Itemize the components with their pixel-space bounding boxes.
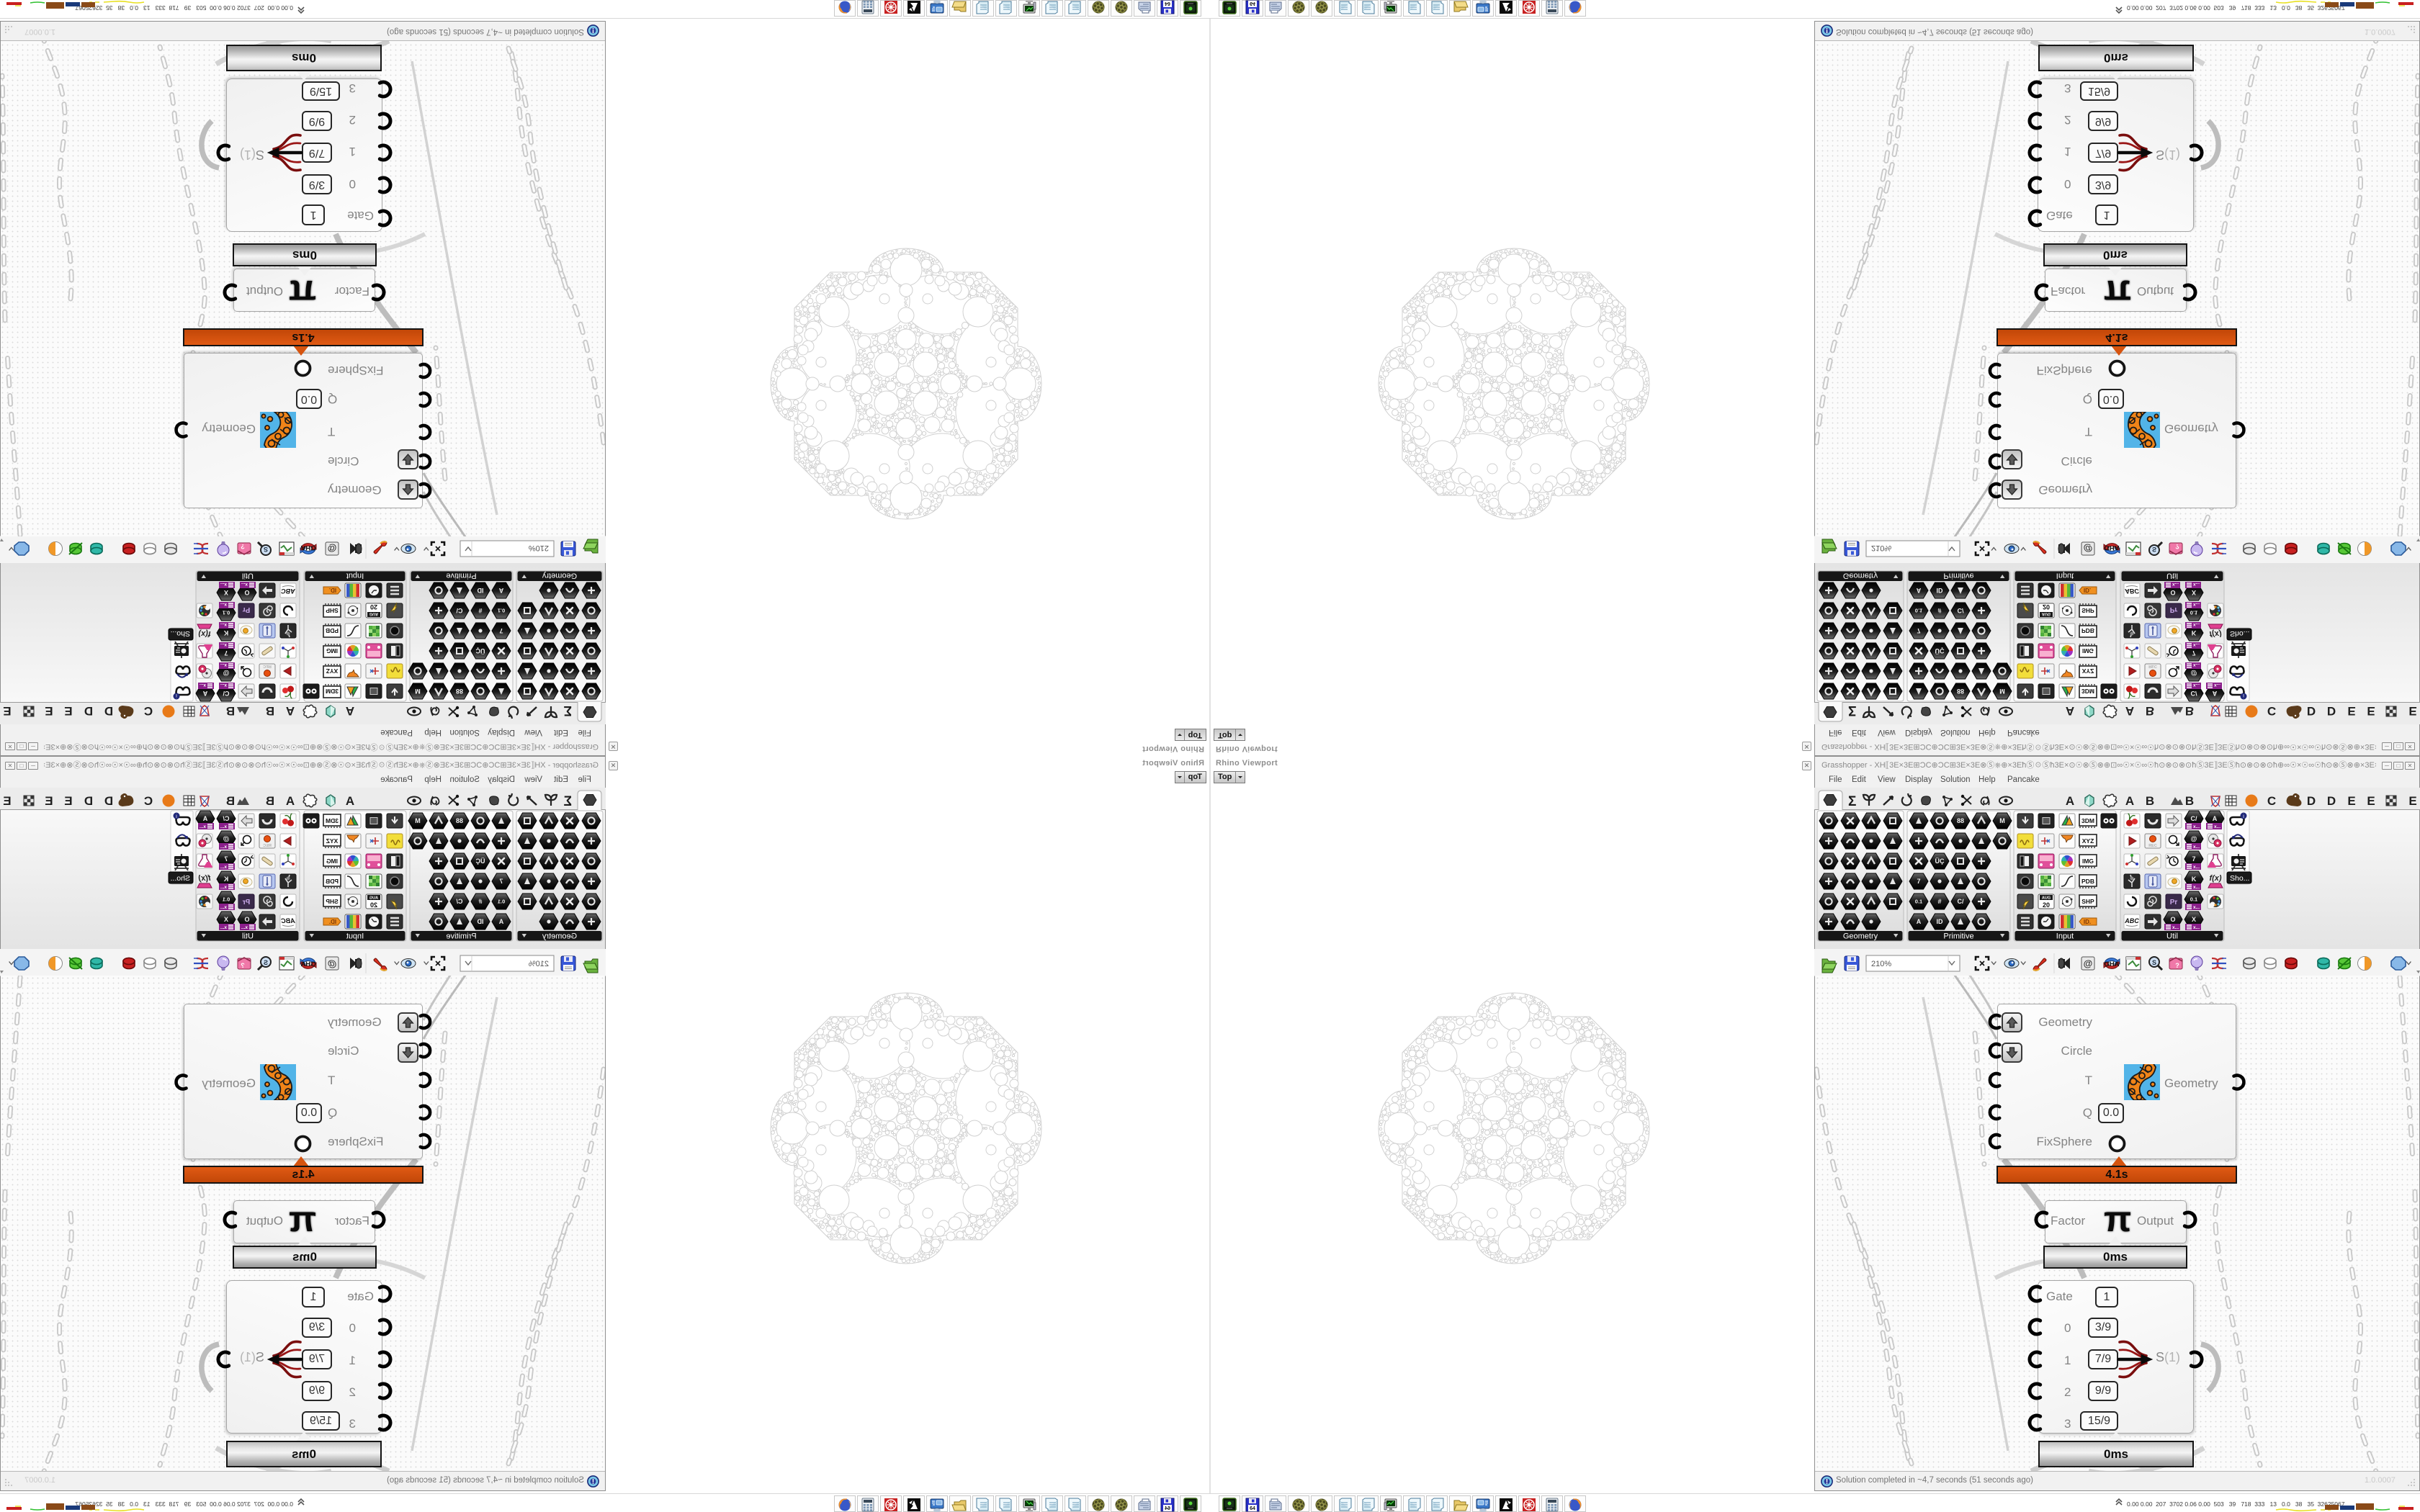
svg-text:7: 7 bbox=[224, 649, 228, 657]
svg-text:210%: 210% bbox=[1871, 960, 1891, 968]
svg-text:AUG: AUG bbox=[369, 896, 378, 901]
svg-text:C/: C/ bbox=[456, 607, 462, 614]
svg-text:AUG: AUG bbox=[369, 612, 378, 616]
svg-text:E: E bbox=[2408, 704, 2416, 718]
svg-text:B: B bbox=[266, 794, 274, 808]
svg-text:Input: Input bbox=[2056, 932, 2074, 941]
svg-text:C: C bbox=[144, 704, 153, 718]
svg-text:@: @ bbox=[2191, 670, 2197, 677]
svg-text:D: D bbox=[2307, 704, 2316, 718]
svg-text:20: 20 bbox=[2043, 603, 2050, 611]
svg-text:x...: x... bbox=[2193, 845, 2200, 850]
svg-text:x...: x... bbox=[220, 824, 227, 829]
svg-text:f(x): f(x) bbox=[2209, 629, 2221, 638]
svg-text:0.1: 0.1 bbox=[2190, 896, 2197, 903]
svg-text:ID.: ID. bbox=[2084, 919, 2091, 925]
svg-text:Primitive: Primitive bbox=[446, 932, 476, 941]
svg-text:@: @ bbox=[328, 544, 337, 554]
svg-text:Pr: Pr bbox=[243, 606, 251, 613]
svg-text:@: @ bbox=[223, 670, 229, 677]
svg-text:B: B bbox=[2185, 794, 2194, 808]
svg-text:IMG: IMG bbox=[2082, 647, 2094, 654]
svg-text:E: E bbox=[45, 704, 53, 718]
svg-text:7: 7 bbox=[1917, 627, 1920, 634]
svg-text:!: ! bbox=[592, 1478, 594, 1486]
svg-text:REC: REC bbox=[263, 664, 272, 668]
svg-text:x...: x... bbox=[220, 642, 227, 647]
svg-text:K: K bbox=[2192, 876, 2197, 883]
svg-text:ID: ID bbox=[1937, 587, 1944, 594]
svg-text:M: M bbox=[415, 688, 421, 695]
svg-text:x...: x... bbox=[2193, 602, 2200, 607]
svg-text:PDB: PDB bbox=[2081, 878, 2094, 885]
svg-text:#: # bbox=[478, 607, 482, 614]
svg-text:A: A bbox=[2213, 815, 2218, 822]
svg-text:0.1: 0.1 bbox=[498, 607, 505, 613]
svg-text:0.1: 0.1 bbox=[1915, 607, 1922, 613]
svg-text:A: A bbox=[2066, 794, 2074, 808]
svg-text:ÜÇ: ÜÇ bbox=[475, 858, 485, 865]
svg-text:REC: REC bbox=[263, 844, 272, 848]
svg-text:X: X bbox=[2192, 916, 2196, 923]
svg-text:ID.: ID. bbox=[2084, 587, 2091, 593]
svg-text:K: K bbox=[2192, 629, 2197, 636]
svg-text:B: B bbox=[2146, 794, 2154, 808]
svg-text:7: 7 bbox=[224, 855, 228, 863]
svg-text:E: E bbox=[2347, 704, 2355, 718]
svg-text:x...: x... bbox=[2172, 582, 2179, 587]
svg-text:AUG: AUG bbox=[2042, 896, 2051, 901]
svg-text:O: O bbox=[244, 916, 249, 923]
svg-text:x...: x... bbox=[220, 845, 227, 850]
svg-text:64: 64 bbox=[1250, 1506, 1255, 1511]
svg-text:IMG: IMG bbox=[2082, 858, 2094, 865]
svg-text:x...: x... bbox=[220, 925, 227, 930]
svg-text:@: @ bbox=[2191, 835, 2197, 842]
svg-text:?: ? bbox=[2175, 962, 2179, 969]
svg-text:GHA: GHA bbox=[300, 960, 315, 968]
svg-text:x...: x... bbox=[2193, 622, 2200, 627]
svg-text:#: # bbox=[1937, 898, 1941, 905]
svg-text:C/: C/ bbox=[456, 898, 462, 905]
svg-text:S: S bbox=[264, 546, 268, 553]
svg-text:x...: x... bbox=[220, 865, 227, 870]
svg-text:x...: x... bbox=[2172, 925, 2179, 930]
svg-text:Primitive: Primitive bbox=[1943, 932, 1973, 941]
svg-text:ID: ID bbox=[477, 918, 484, 925]
svg-text:#: # bbox=[1937, 607, 1941, 614]
svg-text:?: ? bbox=[2175, 543, 2179, 550]
svg-text:x...: x... bbox=[2193, 824, 2200, 829]
svg-text:Geometry: Geometry bbox=[542, 572, 577, 580]
svg-text:x...: x... bbox=[220, 683, 227, 688]
svg-text:#: # bbox=[478, 898, 482, 905]
svg-text:ID: ID bbox=[477, 587, 484, 594]
svg-text:B: B bbox=[226, 794, 235, 808]
svg-text:E: E bbox=[64, 704, 72, 718]
svg-text:ABC: ABC bbox=[2124, 588, 2139, 595]
svg-text:20: 20 bbox=[2043, 901, 2050, 909]
svg-text:ID.: ID. bbox=[329, 919, 336, 925]
svg-text:@: @ bbox=[223, 835, 229, 842]
svg-text:88: 88 bbox=[1957, 817, 1964, 824]
svg-text:88: 88 bbox=[1957, 688, 1964, 695]
svg-text:A: A bbox=[202, 815, 207, 822]
svg-text:XYZ: XYZ bbox=[2082, 667, 2094, 675]
svg-text:D: D bbox=[104, 704, 113, 718]
svg-text:Sho...: Sho... bbox=[2230, 874, 2249, 883]
svg-text:E: E bbox=[2347, 794, 2355, 808]
svg-text:ABC: ABC bbox=[2124, 917, 2139, 924]
svg-text:Input: Input bbox=[346, 572, 364, 580]
svg-text:Primitive: Primitive bbox=[1943, 572, 1973, 580]
svg-text:Pr: Pr bbox=[2170, 606, 2178, 613]
svg-text:PDB: PDB bbox=[326, 627, 339, 634]
svg-text:0.1: 0.1 bbox=[223, 896, 230, 903]
svg-text:x...: x... bbox=[220, 622, 227, 627]
svg-text:?: ? bbox=[241, 962, 245, 969]
svg-text:7: 7 bbox=[2192, 855, 2195, 863]
svg-text:20: 20 bbox=[370, 901, 377, 909]
svg-text:!: ! bbox=[1826, 26, 1828, 34]
svg-text:Geometry: Geometry bbox=[1843, 932, 1878, 941]
svg-text:Σ: Σ bbox=[564, 794, 572, 809]
svg-text:C/: C/ bbox=[223, 815, 229, 822]
svg-text:O: O bbox=[2170, 916, 2175, 923]
svg-text:D: D bbox=[2307, 794, 2316, 808]
svg-text:0.1: 0.1 bbox=[2190, 609, 2197, 616]
svg-text:3DM: 3DM bbox=[326, 688, 339, 695]
svg-text:ÜÇ: ÜÇ bbox=[475, 647, 485, 654]
svg-text:S: S bbox=[2152, 959, 2156, 966]
svg-text:E: E bbox=[2408, 794, 2416, 808]
svg-text:A: A bbox=[2125, 794, 2134, 808]
svg-text:!: ! bbox=[592, 26, 594, 34]
svg-text:C: C bbox=[2267, 794, 2276, 808]
svg-text:x...: x... bbox=[220, 905, 227, 910]
svg-text:A: A bbox=[286, 794, 295, 808]
svg-text:Pr: Pr bbox=[243, 899, 251, 906]
svg-text:A: A bbox=[1917, 587, 1922, 594]
svg-text:D: D bbox=[2327, 794, 2336, 808]
svg-text:x...: x... bbox=[2193, 662, 2200, 667]
svg-text:E: E bbox=[64, 794, 72, 808]
svg-text:B: B bbox=[2185, 704, 2194, 718]
svg-text:x...: x... bbox=[2193, 683, 2200, 688]
svg-text:Primitive: Primitive bbox=[446, 572, 476, 580]
svg-text:Σ: Σ bbox=[564, 703, 572, 718]
svg-text:S: S bbox=[2152, 546, 2156, 553]
svg-text:S: S bbox=[264, 959, 268, 966]
svg-text:IMG: IMG bbox=[326, 647, 338, 654]
svg-text:A: A bbox=[498, 587, 503, 594]
svg-text:x...: x... bbox=[220, 602, 227, 607]
svg-text:C/: C/ bbox=[2191, 690, 2197, 697]
svg-text:7: 7 bbox=[1917, 878, 1920, 885]
svg-text:Σ: Σ bbox=[1848, 703, 1856, 718]
svg-text:A: A bbox=[346, 794, 354, 808]
svg-text:x...: x... bbox=[2193, 905, 2200, 910]
svg-text:ÜÇ: ÜÇ bbox=[1935, 858, 1945, 865]
svg-text:A: A bbox=[2066, 704, 2074, 718]
svg-text:A: A bbox=[498, 918, 503, 925]
svg-text:X: X bbox=[224, 916, 228, 923]
svg-text:x...: x... bbox=[241, 925, 248, 930]
svg-text:Σ: Σ bbox=[1848, 794, 1856, 809]
svg-text:K: K bbox=[223, 629, 228, 636]
svg-text:64: 64 bbox=[1165, 1506, 1170, 1511]
svg-text:64: 64 bbox=[1250, 1, 1255, 6]
svg-text:AUG: AUG bbox=[2042, 612, 2051, 616]
svg-text:PDB: PDB bbox=[326, 878, 339, 885]
svg-text:B: B bbox=[226, 704, 235, 718]
svg-text:SHP: SHP bbox=[2081, 898, 2094, 905]
svg-text:C/: C/ bbox=[1958, 607, 1964, 614]
svg-text:C: C bbox=[144, 794, 153, 808]
svg-text:Sho...: Sho... bbox=[171, 874, 190, 883]
svg-text:x...: x... bbox=[241, 582, 248, 587]
svg-text:ID: ID bbox=[1937, 918, 1944, 925]
svg-text:88: 88 bbox=[456, 688, 463, 695]
svg-text:X: X bbox=[2192, 589, 2196, 596]
svg-text:3DM: 3DM bbox=[2081, 817, 2094, 824]
svg-text:A: A bbox=[202, 690, 207, 697]
svg-text:20: 20 bbox=[370, 603, 377, 611]
svg-text:88: 88 bbox=[456, 817, 463, 824]
svg-text:Util: Util bbox=[2166, 932, 2178, 941]
svg-text:XYZ: XYZ bbox=[326, 667, 339, 675]
svg-text:E: E bbox=[3, 704, 11, 718]
svg-text:3DM: 3DM bbox=[326, 817, 339, 824]
svg-text:D: D bbox=[84, 794, 93, 808]
svg-text:x...: x... bbox=[2214, 824, 2220, 829]
svg-text:f(x): f(x) bbox=[2209, 874, 2221, 883]
svg-text:!: ! bbox=[1826, 1478, 1828, 1486]
svg-text:REC: REC bbox=[2148, 844, 2157, 848]
svg-text:X: X bbox=[224, 589, 228, 596]
svg-text:@: @ bbox=[2084, 544, 2093, 554]
svg-text:0.1: 0.1 bbox=[223, 609, 230, 616]
svg-text:K: K bbox=[223, 876, 228, 883]
svg-text:210%: 210% bbox=[529, 960, 549, 968]
svg-text:O: O bbox=[2170, 589, 2175, 596]
svg-text:E: E bbox=[2367, 794, 2375, 808]
svg-text:E: E bbox=[2367, 704, 2375, 718]
svg-text:M: M bbox=[415, 817, 421, 824]
svg-text:B: B bbox=[266, 704, 274, 718]
svg-text:A: A bbox=[2213, 690, 2218, 697]
svg-text:ABC: ABC bbox=[281, 917, 296, 924]
svg-text:x...: x... bbox=[220, 582, 227, 587]
svg-text:D: D bbox=[2327, 704, 2336, 718]
svg-text:64: 64 bbox=[1165, 1, 1170, 6]
svg-text:ABC: ABC bbox=[281, 588, 296, 595]
svg-text:O: O bbox=[244, 589, 249, 596]
svg-text:Geometry: Geometry bbox=[1843, 572, 1878, 580]
svg-text:Input: Input bbox=[346, 932, 364, 941]
svg-text:Geometry: Geometry bbox=[542, 932, 577, 941]
svg-text:Input: Input bbox=[2056, 572, 2074, 580]
svg-text:GHA: GHA bbox=[300, 544, 315, 552]
svg-text:x...: x... bbox=[2193, 925, 2200, 930]
svg-text:A: A bbox=[2125, 704, 2134, 718]
svg-text:B: B bbox=[2146, 704, 2154, 718]
svg-text:C/: C/ bbox=[223, 690, 229, 697]
svg-text:Util: Util bbox=[242, 572, 254, 580]
svg-text:GHA: GHA bbox=[2104, 960, 2119, 968]
svg-text:ÜÇ: ÜÇ bbox=[1935, 647, 1945, 654]
svg-text:REC: REC bbox=[2148, 664, 2157, 668]
svg-text:x...: x... bbox=[2193, 642, 2200, 647]
svg-text:x...: x... bbox=[2214, 683, 2220, 688]
svg-text:C/: C/ bbox=[1958, 898, 1964, 905]
svg-text:7: 7 bbox=[2192, 649, 2195, 657]
svg-text:f(x): f(x) bbox=[198, 874, 210, 883]
svg-text:f(x): f(x) bbox=[198, 629, 210, 638]
svg-text:@: @ bbox=[328, 958, 337, 969]
svg-text:SHP: SHP bbox=[326, 898, 339, 905]
svg-text:@: @ bbox=[2084, 958, 2093, 969]
svg-text:?: ? bbox=[241, 543, 245, 550]
svg-text:x...: x... bbox=[200, 683, 206, 688]
svg-text:C/: C/ bbox=[2191, 815, 2197, 822]
svg-text:Pr: Pr bbox=[2170, 899, 2178, 906]
svg-text:XYZ: XYZ bbox=[326, 837, 339, 845]
svg-text:Util: Util bbox=[2166, 572, 2178, 580]
svg-text:210%: 210% bbox=[529, 544, 549, 552]
svg-text:x...: x... bbox=[220, 885, 227, 890]
svg-text:C: C bbox=[2267, 704, 2276, 718]
svg-text:x...: x... bbox=[200, 824, 206, 829]
svg-text:Util: Util bbox=[242, 932, 254, 941]
svg-text:IMG: IMG bbox=[326, 858, 338, 865]
svg-text:M: M bbox=[1999, 688, 2005, 695]
svg-text:M: M bbox=[1999, 817, 2005, 824]
svg-text:3DM: 3DM bbox=[2081, 688, 2094, 695]
svg-text:x...: x... bbox=[2193, 865, 2200, 870]
svg-text:SHP: SHP bbox=[2081, 607, 2094, 614]
svg-text:SHP: SHP bbox=[326, 607, 339, 614]
svg-text:A: A bbox=[346, 704, 354, 718]
svg-text:7: 7 bbox=[499, 627, 503, 634]
svg-text:x...: x... bbox=[2193, 885, 2200, 890]
svg-text:x...: x... bbox=[2193, 582, 2200, 587]
svg-text:XYZ: XYZ bbox=[2082, 837, 2094, 845]
svg-text:D: D bbox=[84, 704, 93, 718]
svg-text:x...: x... bbox=[220, 662, 227, 667]
svg-text:E: E bbox=[45, 794, 53, 808]
svg-text:0.1: 0.1 bbox=[1915, 899, 1922, 905]
svg-text:ID.: ID. bbox=[329, 587, 336, 593]
svg-text:A: A bbox=[286, 704, 295, 718]
svg-text:Sho...: Sho... bbox=[171, 629, 190, 638]
svg-text:7: 7 bbox=[499, 878, 503, 885]
svg-text:GHA: GHA bbox=[2104, 544, 2119, 552]
svg-text:A: A bbox=[1917, 918, 1922, 925]
svg-text:E: E bbox=[3, 794, 11, 808]
svg-text:D: D bbox=[104, 794, 113, 808]
svg-text:Sho...: Sho... bbox=[2230, 629, 2249, 638]
svg-text:210%: 210% bbox=[1871, 544, 1891, 552]
svg-text:0.1: 0.1 bbox=[498, 899, 505, 905]
svg-text:PDB: PDB bbox=[2081, 627, 2094, 634]
